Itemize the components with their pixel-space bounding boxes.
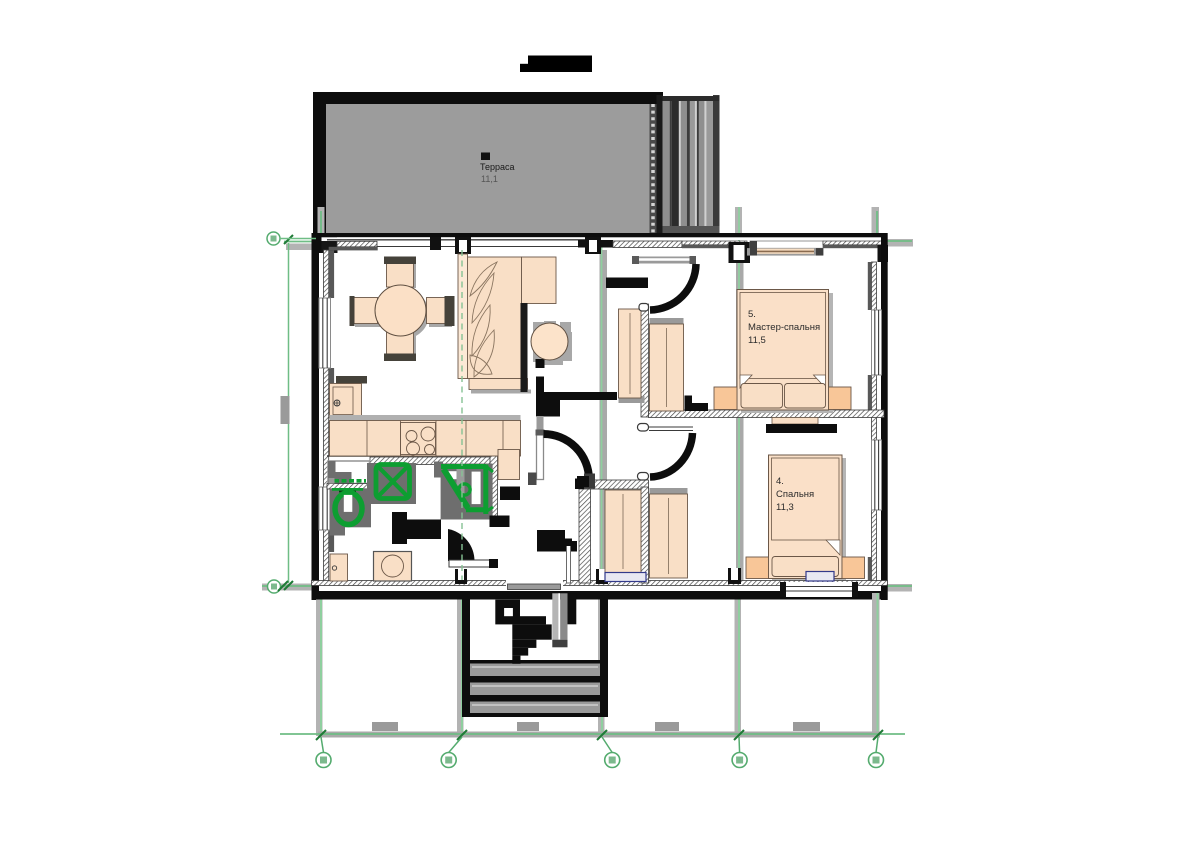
- svg-text:11,5: 11,5: [748, 335, 766, 346]
- svg-text:5.: 5.: [748, 309, 756, 320]
- svg-text:Спальня: Спальня: [776, 489, 814, 500]
- svg-text:Терраса: Терраса: [480, 162, 515, 172]
- svg-text:Мастер-спальня: Мастер-спальня: [748, 322, 820, 333]
- svg-text:11,3: 11,3: [776, 502, 794, 513]
- svg-text:4.: 4.: [776, 476, 784, 487]
- svg-text:11,1: 11,1: [481, 174, 498, 184]
